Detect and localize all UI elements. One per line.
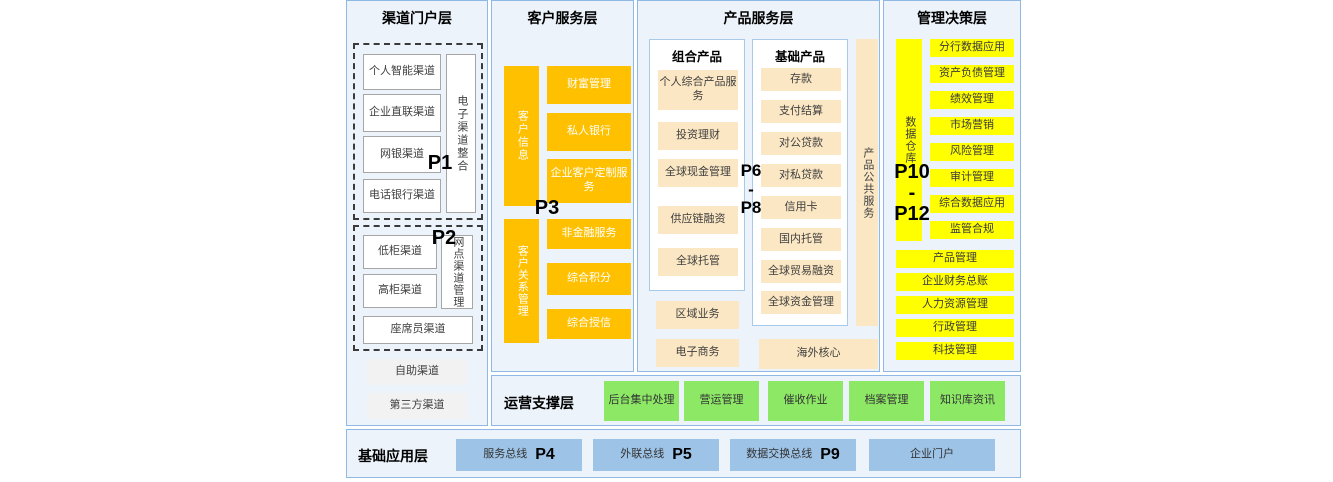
box-overseas-core: 海外核心 (759, 339, 878, 369)
operations-support-layer-title: 运营支撑层 (504, 393, 574, 413)
operations-support-layer-panel: 运营支撑层 后台集中处理 营运管理 催收作业 档案管理 知识库资讯 (491, 375, 1021, 426)
box-global-fund-management: 全球资金管理 (761, 291, 841, 314)
p10-label: P10 (894, 161, 930, 183)
p4-label: P4 (535, 445, 555, 465)
p12-label: P12 (894, 203, 930, 225)
box-investment-wealth: 投资理财 (658, 122, 738, 150)
box-comprehensive-credit: 综合授信 (547, 309, 631, 339)
box-personal-loans: 对私贷款 (761, 164, 841, 187)
box-global-cash-management: 全球现金管理 (658, 159, 738, 187)
channel-portal-layer-panel: 渠道门户层 个人智能渠道 企业直联渠道 网银渠道 电话银行渠道 电子渠道整合 P… (346, 0, 488, 426)
box-product-management: 产品管理 (896, 250, 1014, 268)
p3-label: P3 (526, 198, 568, 218)
box-performance-management: 绩效管理 (930, 91, 1014, 109)
box-enterprise-general-ledger: 企业财务总账 (896, 273, 1014, 291)
box-service-bus: 服务总线 P4 (456, 439, 582, 471)
customer-service-layer-title: 客户服务层 (492, 8, 633, 28)
box-risk-management: 风险管理 (930, 143, 1014, 161)
combo-products-title: 组合产品 (650, 46, 744, 65)
p6-p8-label: P6 - P8 (735, 162, 767, 218)
box-enterprise-portal: 企业门户 (869, 439, 995, 471)
box-comprehensive-data-application: 综合数据应用 (930, 195, 1014, 213)
box-enterprise-direct-channel: 企业直联渠道 (363, 94, 441, 132)
architecture-diagram: 渠道门户层 个人智能渠道 企业直联渠道 网银渠道 电话银行渠道 电子渠道整合 P… (0, 0, 1333, 482)
p2-label: P2 (423, 228, 465, 248)
box-non-financial-services: 非金融服务 (547, 219, 631, 249)
box-corporate-loans: 对公贷款 (761, 132, 841, 155)
box-backoffice-centralized-processing: 后台集中处理 (604, 381, 679, 421)
bar-customer-information: 客户信息 (504, 66, 539, 206)
product-service-layer-panel: 产品服务层 组合产品 个人综合产品服务 投资理财 全球现金管理 供应链融资 全球… (637, 0, 880, 372)
box-administrative-management: 行政管理 (896, 319, 1014, 337)
box-technology-management: 科技管理 (896, 342, 1014, 360)
box-third-party-channel: 第三方渠道 (367, 393, 467, 419)
box-marketing: 市场营销 (930, 117, 1014, 135)
box-comprehensive-points: 综合积分 (547, 263, 631, 295)
enterprise-portal-label: 企业门户 (910, 448, 954, 462)
channel-portal-layer-title: 渠道门户层 (347, 8, 487, 28)
box-branch-data-application: 分行数据应用 (930, 39, 1014, 57)
box-credit-card: 信用卡 (761, 196, 841, 219)
box-archive-management: 档案管理 (849, 381, 924, 421)
electronic-channel-group: 个人智能渠道 企业直联渠道 网银渠道 电话银行渠道 电子渠道整合 (353, 43, 483, 220)
basic-products-title: 基础产品 (753, 46, 847, 65)
box-payment-settlement: 支付结算 (761, 100, 841, 123)
bar-customer-relationship-management: 客户关系管理 (504, 219, 539, 343)
p5-label: P5 (672, 445, 692, 465)
foundation-application-layer-title: 基础应用层 (358, 446, 428, 466)
management-decision-layer-title: 管理决策层 (884, 8, 1020, 28)
box-regional-business: 区域业务 (656, 301, 739, 329)
product-service-layer-title: 产品服务层 (638, 8, 879, 28)
box-human-resources-management: 人力资源管理 (896, 296, 1014, 314)
box-high-counter-channel: 高柜渠道 (363, 274, 437, 308)
box-deposits: 存款 (761, 68, 841, 91)
box-data-exchange-bus: 数据交换总线 P9 (730, 439, 856, 471)
box-audit-management: 审计管理 (930, 169, 1014, 187)
p10-p12-dash: - (909, 182, 916, 204)
box-supply-chain-financing: 供应链融资 (658, 206, 738, 234)
box-global-custody: 全球托管 (658, 248, 738, 276)
p9-label: P9 (820, 445, 840, 465)
box-global-trade-financing: 全球贸易融资 (761, 260, 841, 283)
box-domestic-custody: 国内托管 (761, 228, 841, 251)
service-bus-label: 服务总线 (483, 448, 527, 462)
box-self-service-channel: 自助渠道 (367, 359, 467, 385)
p10-p12-label: P10 - P12 (884, 162, 940, 225)
p6-p8-dash: - (748, 180, 754, 199)
box-wealth-management: 财富管理 (547, 66, 631, 104)
bar-product-public-services: 产品公共服务 (856, 39, 878, 326)
customer-service-layer-panel: 客户服务层 客户信息 财富管理 私人银行 企业客户定制服务 P3 客户关系管理 … (491, 0, 634, 372)
combo-products-group: 组合产品 个人综合产品服务 投资理财 全球现金管理 供应链融资 全球托管 (649, 39, 745, 291)
box-asset-liability-management: 资产负债管理 (930, 65, 1014, 83)
box-agent-channel: 座席员渠道 (363, 316, 473, 344)
box-telephone-banking-channel: 电话银行渠道 (363, 179, 441, 213)
box-e-commerce: 电子商务 (656, 339, 739, 367)
box-private-banking: 私人银行 (547, 113, 631, 151)
external-bus-label: 外联总线 (620, 448, 664, 462)
p6-label: P6 (741, 161, 762, 180)
box-personal-smart-channel: 个人智能渠道 (363, 54, 441, 90)
box-knowledge-base-information: 知识库资讯 (930, 381, 1005, 421)
box-collection-operations: 催收作业 (768, 381, 843, 421)
box-regulatory-compliance: 监管合规 (930, 221, 1014, 239)
box-external-bus: 外联总线 P5 (593, 439, 719, 471)
p8-label: P8 (741, 198, 762, 217)
box-personal-comprehensive-product: 个人综合产品服务 (658, 70, 738, 110)
management-decision-layer-panel: 管理决策层 数据仓库 分行数据应用 资产负债管理 绩效管理 市场营销 风险管理 … (883, 0, 1021, 372)
box-operations-management: 营运管理 (684, 381, 759, 421)
bar-electronic-channel-integration: 电子渠道整合 (446, 54, 476, 213)
data-exchange-bus-label: 数据交换总线 (746, 448, 812, 462)
foundation-application-layer-panel: 基础应用层 服务总线 P4 外联总线 P5 数据交换总线 P9 企业门户 (346, 429, 1021, 478)
box-enterprise-custom-service: 企业客户定制服务 (547, 159, 631, 203)
p1-label: P1 (419, 153, 461, 173)
